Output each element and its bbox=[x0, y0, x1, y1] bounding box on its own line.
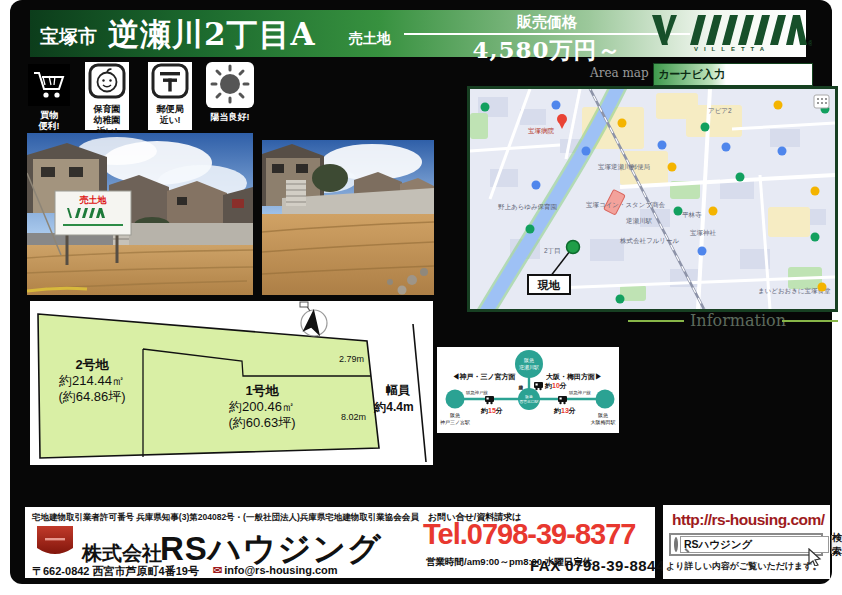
lot2-area: 約214.44㎡ bbox=[58, 373, 125, 388]
site-photo-left: 売土地 bbox=[27, 133, 253, 295]
info-divider-left bbox=[628, 320, 684, 322]
north-arrow-icon bbox=[300, 302, 327, 336]
map-label: 宝塚病院 bbox=[528, 127, 555, 135]
train-route-diagram: 阪急 逆瀬川駅 阪急今津線 約10分 阪急 西宮北口駅 ◀神戸・三ノ宮方面 大阪… bbox=[437, 347, 619, 433]
company-email[interactable]: ✉info@rs-housing.com bbox=[213, 564, 338, 577]
dim-right: 8.02m bbox=[341, 412, 366, 422]
time-top: 約10分 bbox=[544, 382, 567, 390]
badge-sunlight-label: 陽当良好! bbox=[206, 112, 254, 123]
baby-icon bbox=[87, 62, 127, 100]
car-navi-label: カーナビ入力 bbox=[654, 64, 726, 85]
company-logo-icon bbox=[33, 524, 77, 562]
map-label: 平林寺 bbox=[682, 211, 702, 218]
badge-shopping-label: 買物 bbox=[28, 110, 70, 121]
station-center-1: 阪急 bbox=[525, 394, 533, 399]
map-label: 2丁目 bbox=[544, 247, 561, 254]
station-center-2: 西宮北口駅 bbox=[520, 399, 539, 404]
search-input[interactable] bbox=[680, 536, 829, 553]
badge-nursery: 保育園 幼稚園 近い! bbox=[85, 62, 129, 130]
map-label: 逆瀬川駅 bbox=[626, 217, 653, 225]
search-button[interactable]: 検索 bbox=[831, 535, 842, 554]
station-right-2: 大阪梅田駅 bbox=[591, 419, 616, 426]
search-bar: 検索 bbox=[669, 533, 823, 556]
lot1-name: 1号地 bbox=[245, 383, 279, 398]
area-map[interactable]: 宝塚病院 逆瀬川駅 アピア2 宝塚逆瀬川郵便局 宝塚コイン・スタンプ商会 株式会… bbox=[467, 86, 838, 312]
lot2-tsubo: (約64.86坪) bbox=[58, 389, 125, 404]
sale-type-label: 売土地 bbox=[349, 30, 391, 48]
signboard-text: 売土地 bbox=[80, 195, 108, 205]
price-value: 4,580万円～ bbox=[404, 35, 690, 66]
station-left-1: 阪急 bbox=[450, 412, 460, 418]
badge-shopping-label: 便利! bbox=[28, 121, 70, 132]
map-label: 宝塚逆瀬川郵便局 bbox=[598, 163, 650, 171]
lot-plan: 2号地 約214.44㎡ (約64.86坪) 1号地 約200.46㎡ (約60… bbox=[30, 301, 433, 465]
map-label: 宝塚コイン・スタンプ商会 bbox=[586, 201, 666, 208]
badge-postoffice: 郵便局 近い! bbox=[148, 62, 192, 130]
car-navi-box: カーナビ入力 bbox=[653, 63, 813, 86]
site-label: 現地 bbox=[537, 279, 561, 291]
lot1-area: 約200.46㎡ bbox=[228, 399, 295, 414]
badge-nursery-label: 幼稚園 bbox=[85, 115, 129, 126]
badge-postoffice-label: 近い! bbox=[148, 115, 192, 126]
license-text: 宅地建物取引業者許可番号 兵庫県知事(3)第204082号・(一般社団法人)兵庫… bbox=[32, 512, 419, 524]
search-icon bbox=[674, 537, 678, 552]
sun-icon bbox=[206, 62, 254, 108]
map-label: 株式会社フルリール bbox=[619, 237, 679, 244]
map-label: アピア2 bbox=[708, 107, 732, 114]
map-label: 野上あらゆみ保育園 bbox=[498, 203, 557, 211]
price-label: 販売価格 bbox=[404, 13, 690, 35]
area-map-label: Area map bbox=[590, 66, 649, 80]
page-title: 逆瀬川2丁目A bbox=[108, 14, 316, 56]
area-map-canvas: 宝塚病院 逆瀬川駅 アピア2 宝塚逆瀬川郵便局 宝塚コイン・スタンプ商会 株式会… bbox=[470, 89, 835, 309]
road-width-label-2: 約4.4m bbox=[373, 400, 413, 414]
badge-sunlight: 陽当良好! bbox=[206, 62, 254, 123]
station-left-2: 神戸三ノ宮駅 bbox=[440, 419, 470, 425]
phone-number[interactable]: Tel.0798-39-8377 bbox=[423, 518, 635, 551]
brand-name: VILLETTA bbox=[672, 46, 792, 52]
dim-top: 2.79m bbox=[339, 354, 364, 364]
website-url[interactable]: http://rs-housing.com/ bbox=[672, 511, 825, 529]
time-left: 約15分 bbox=[480, 407, 503, 415]
map-label: 宝塚神社 bbox=[690, 229, 717, 236]
badge-shopping: 買物 便利! bbox=[28, 64, 70, 132]
station-top-2: 逆瀬川駅 bbox=[519, 364, 539, 371]
fax-number: FAX 0798-39-8844 bbox=[530, 557, 665, 574]
lot2-name: 2号地 bbox=[75, 357, 109, 372]
registered-mark: ® bbox=[808, 40, 812, 47]
company-prefix: 株式会社 bbox=[82, 540, 162, 567]
badge-postoffice-label: 郵便局 bbox=[148, 104, 192, 115]
header-city: 宝塚市 bbox=[40, 24, 97, 50]
search-note: より詳しい内容がご覧いただけます。 bbox=[666, 560, 822, 573]
company-address: 〒662-0842 西宮市芦原町4番19号 bbox=[32, 564, 199, 579]
direction-left: ◀神戸・三ノ宮方面 bbox=[452, 372, 515, 381]
station-right-1: 阪急 bbox=[598, 412, 608, 418]
mail-icon: ✉ bbox=[213, 564, 222, 576]
flyer-page: 宝塚市 逆瀬川2丁目A 売土地 販売価格 4,580万円～ ® VILLETTA… bbox=[0, 0, 842, 595]
badge-nursery-label: 保育園 bbox=[85, 104, 129, 115]
cart-icon bbox=[28, 64, 70, 106]
price-block: 販売価格 4,580万円～ bbox=[404, 13, 690, 66]
site-photo-right bbox=[262, 140, 434, 295]
station-top-1: 阪急 bbox=[524, 357, 534, 363]
road-width-label-1: 幅員 bbox=[385, 383, 410, 397]
post-office-icon bbox=[150, 62, 190, 100]
lot1-tsubo: (約60.63坪) bbox=[228, 415, 295, 430]
direction-right: 大阪・梅田方面▶ bbox=[546, 372, 602, 381]
kobe-line-right: 阪急神戸線 bbox=[569, 390, 592, 395]
brand-logo-icon: ® bbox=[650, 13, 812, 47]
info-divider-right bbox=[782, 320, 838, 322]
info-title: Information bbox=[690, 311, 786, 330]
time-right: 約13分 bbox=[553, 407, 576, 415]
imazu-line-label: 阪急今津線 bbox=[518, 385, 524, 390]
kobe-line-left: 阪急神戸線 bbox=[466, 390, 489, 395]
